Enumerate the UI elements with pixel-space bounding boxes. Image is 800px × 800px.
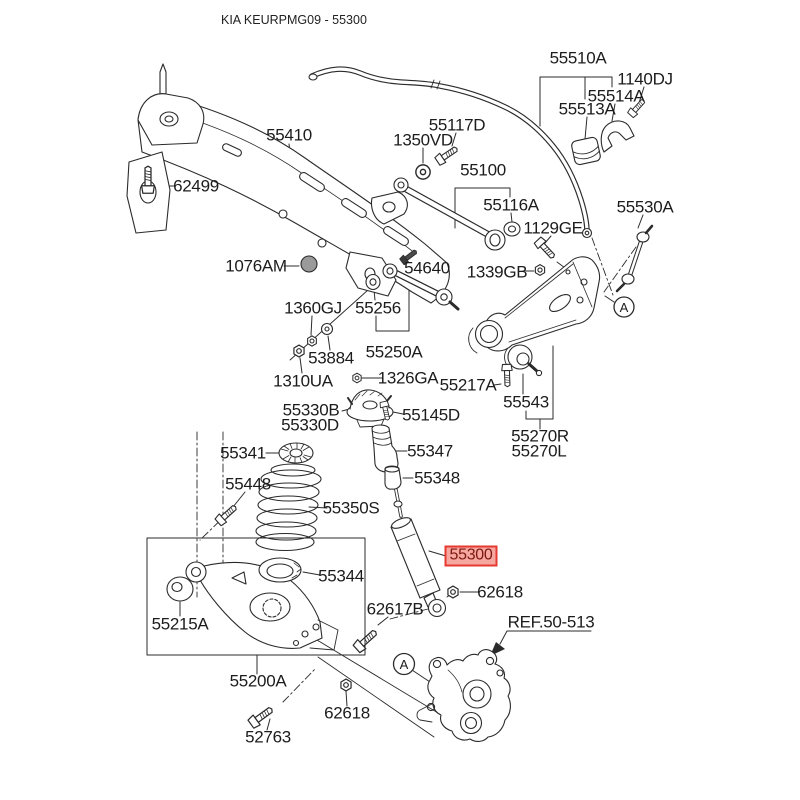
diagram-title: KIA KEURPMG09 - 55300	[221, 13, 367, 27]
part-label-55350s[interactable]: 55350S	[323, 500, 380, 517]
part-label-62499[interactable]: 62499	[173, 178, 219, 195]
part-label-62618-lower[interactable]: 62618	[324, 705, 370, 722]
stabilizer-bracket-drawing	[601, 121, 634, 152]
part-label-53884[interactable]: 53884	[308, 350, 354, 367]
bolt-62617b-drawing	[352, 627, 379, 653]
part-label-1350vd[interactable]: 1350VD	[393, 132, 453, 149]
washer-1350vd-drawing	[416, 165, 430, 179]
dust-cover-drawing	[372, 425, 398, 472]
ref-label[interactable]: REF.50-513	[508, 614, 595, 631]
callout-a2: A	[394, 654, 415, 675]
knuckle-drawing	[417, 650, 510, 742]
stabilizer-link-drawing	[617, 226, 652, 291]
part-label-55530a[interactable]: 55530A	[617, 199, 674, 216]
lower-control-arm-drawing	[167, 558, 338, 650]
nut-1339gb-drawing	[535, 265, 544, 276]
bushing-55116a-drawing	[504, 222, 520, 236]
callout-a1-letter: A	[620, 300, 629, 315]
nut-62618a-drawing	[448, 586, 458, 598]
part-label-55270l[interactable]: 55270L	[512, 443, 567, 460]
diagram-line-art: A A	[0, 0, 800, 800]
nut-1360gj-drawing	[308, 336, 317, 346]
part-label-55217a[interactable]: 55217A	[440, 377, 497, 394]
part-label-1360gj[interactable]: 1360GJ	[284, 300, 342, 317]
part-label-55344[interactable]: 55344	[318, 568, 364, 585]
nut-1310ua-drawing	[294, 345, 304, 357]
part-label-55543[interactable]: 55543	[503, 394, 549, 411]
part-label-52763[interactable]: 52763	[245, 729, 291, 746]
part-label-55513a[interactable]: 55513A	[559, 101, 616, 118]
bolt-1129ge-drawing	[534, 236, 558, 261]
part-label-55256[interactable]: 55256	[355, 300, 401, 317]
nut-1326ga-drawing	[353, 373, 361, 383]
part-label-55200a[interactable]: 55200A	[230, 673, 287, 690]
bolt-55448-drawing	[214, 503, 239, 527]
bumper-stopper-drawing	[385, 466, 402, 516]
callout-a1: A	[614, 297, 634, 317]
part-label-55145d[interactable]: 55145D	[402, 407, 460, 424]
spring-pad-drawing	[279, 443, 313, 463]
part-label-55347[interactable]: 55347	[407, 443, 453, 460]
part-label-55100[interactable]: 55100	[460, 162, 506, 179]
nut-62618b-drawing	[341, 679, 351, 691]
bolt-55217a-drawing	[502, 364, 513, 387]
part-label-55330d[interactable]: 55330D	[281, 417, 339, 434]
part-label-1076am[interactable]: 1076AM	[225, 258, 287, 275]
plug-1076am-drawing	[301, 256, 317, 272]
part-label-1310ua[interactable]: 1310UA	[273, 373, 333, 390]
part-label-55510a[interactable]: 55510A	[550, 50, 607, 67]
parts-diagram-page: A A KIA KEURPMG09 - 55300 55510A 1140DJ …	[0, 0, 800, 800]
part-label-55250a[interactable]: 55250A	[366, 344, 423, 361]
part-label-1129ge[interactable]: 1129GE	[523, 220, 582, 237]
washer-53884-drawing	[322, 324, 333, 335]
part-label-1326ga[interactable]: 1326GA	[378, 370, 439, 387]
part-label-1140dj[interactable]: 1140DJ	[617, 71, 673, 88]
part-label-62617b[interactable]: 62617B	[367, 601, 424, 618]
part-label-55300-highlighted[interactable]: 55300	[445, 546, 498, 567]
stabilizer-bushing-drawing	[571, 137, 601, 166]
part-label-55116a[interactable]: 55116A	[483, 197, 539, 214]
part-label-55410[interactable]: 55410	[266, 127, 312, 144]
callout-a2-letter: A	[400, 657, 409, 672]
part-label-62618-upper[interactable]: 62618	[477, 584, 523, 601]
part-label-55448[interactable]: 55448	[225, 476, 271, 493]
part-label-55341[interactable]: 55341	[220, 445, 266, 462]
part-label-54640[interactable]: 54640	[404, 260, 450, 277]
part-label-1339gb[interactable]: 1339GB	[467, 264, 528, 281]
part-label-55215a[interactable]: 55215A	[152, 616, 209, 633]
bolt-52763-drawing	[247, 704, 275, 729]
part-label-55348[interactable]: 55348	[414, 470, 460, 487]
